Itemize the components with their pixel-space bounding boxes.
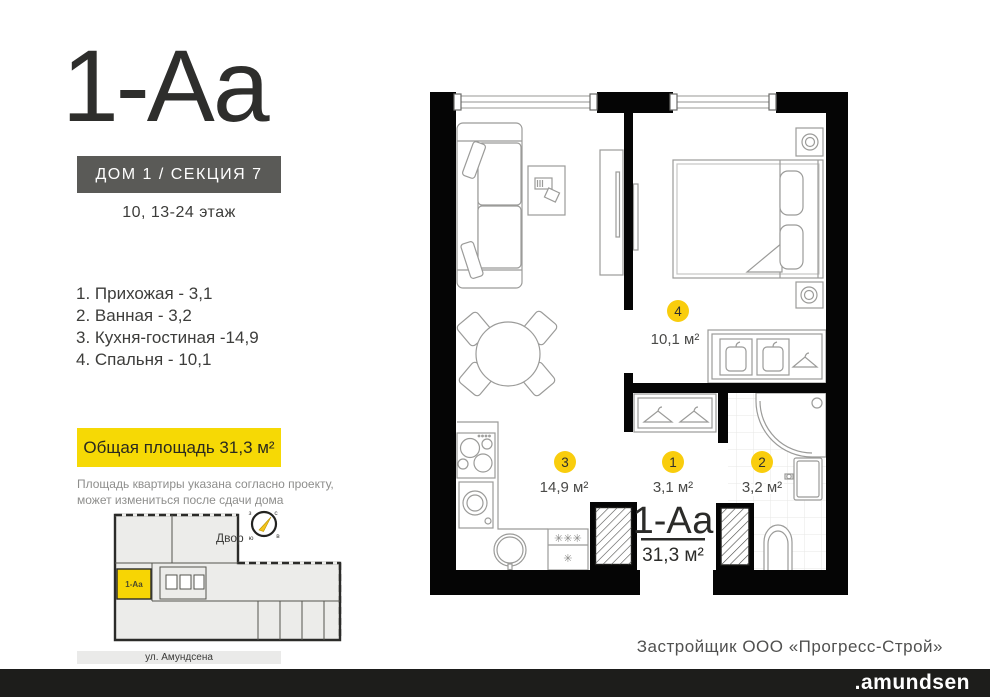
street-label: ул. Амундсена — [145, 652, 213, 663]
compass-icon: с в ю з — [249, 510, 281, 542]
room-area: 14,9 м² — [540, 479, 589, 496]
room-area: 10,1 м² — [651, 331, 700, 348]
room-legend: 1. Прихожая - 3,1 2. Ванная - 3,2 3. Кух… — [76, 283, 259, 371]
vent-shaft-left — [590, 502, 637, 570]
floorplan-poster: { "header": { "plan_code": "1-Аа", "buil… — [0, 0, 990, 700]
total-area-label: Общая площадь 31,3 м² — [83, 438, 274, 458]
nightstand-top — [796, 128, 823, 156]
toilet — [764, 525, 792, 570]
building-section-badge: ДОМ 1 / СЕКЦИЯ 7 — [77, 156, 281, 193]
compass-east: в — [276, 533, 280, 540]
building-section-label: ДОМ 1 / СЕКЦИЯ 7 — [95, 166, 262, 184]
washing-machine — [459, 482, 493, 528]
compass-west: з — [249, 510, 252, 517]
legend-item: 2. Ванная - 3,2 — [76, 305, 259, 327]
unit-total-area: 31,3 м² — [642, 545, 704, 566]
footer-bar: .amundsen — [0, 669, 990, 697]
disclaimer: Площадь квартиры указана согласно проект… — [77, 476, 334, 508]
desk — [528, 166, 565, 215]
compass-north: с — [274, 510, 278, 517]
floor-plan: ✳✳✳ ✳ 3 14,9 м² 1 3,1 м² 2 3,2 м² 4 10,1… — [430, 92, 848, 595]
legend-item: 1. Прихожая - 3,1 — [76, 283, 259, 305]
room-number: 3 — [561, 455, 569, 470]
total-area-box: Общая площадь 31,3 м² — [77, 428, 281, 467]
page-title: 1-Аа — [62, 30, 267, 142]
legend-item: 3. Кухня-гостиная -14,9 — [76, 327, 259, 349]
brand-logo: .amundsen — [855, 671, 990, 695]
vent-shaft-right — [716, 503, 754, 570]
minimap-unit-label: 1-Аа — [125, 580, 143, 589]
unit-underline — [641, 538, 705, 541]
pillow — [780, 171, 803, 215]
compass-south: ю — [249, 535, 254, 542]
room-number: 1 — [669, 455, 677, 470]
yard-label: Двор — [216, 531, 244, 545]
room-area: 3,1 м² — [653, 479, 693, 496]
street-label-bar: ул. Амундсена — [77, 651, 281, 664]
hallway-closet — [634, 394, 716, 432]
tv-stand — [600, 150, 623, 275]
unit-code: 1-Аа — [633, 500, 715, 542]
sofa — [457, 123, 522, 288]
window — [670, 94, 776, 110]
fridge-freezer-symbol: ✳✳✳ — [554, 533, 582, 545]
floors-range: 10, 13-24 этаж — [77, 204, 281, 222]
room-number: 4 — [674, 304, 682, 319]
legend-item: 4. Спальня - 10,1 — [76, 349, 259, 371]
room-area: 3,2 м² — [742, 479, 782, 496]
nightstand-bottom — [796, 282, 823, 308]
tv-icon — [634, 184, 639, 250]
bed — [673, 160, 823, 278]
plan-unit-label: 1-Аа 31,3 м² — [633, 500, 715, 566]
bedroom-wardrobe — [708, 330, 826, 383]
stove — [457, 433, 495, 478]
section-minimap: 1-Аа Двор с в ю з — [108, 505, 353, 648]
pillow — [780, 225, 803, 269]
room-number: 2 — [758, 455, 766, 470]
window — [454, 94, 597, 110]
fridge-symbol: ✳ — [563, 553, 572, 565]
disclaimer-line: Площадь квартиры указана согласно проект… — [77, 476, 334, 492]
developer-credit: Застройщик ООО «Прогресс-Строй» — [637, 637, 943, 657]
